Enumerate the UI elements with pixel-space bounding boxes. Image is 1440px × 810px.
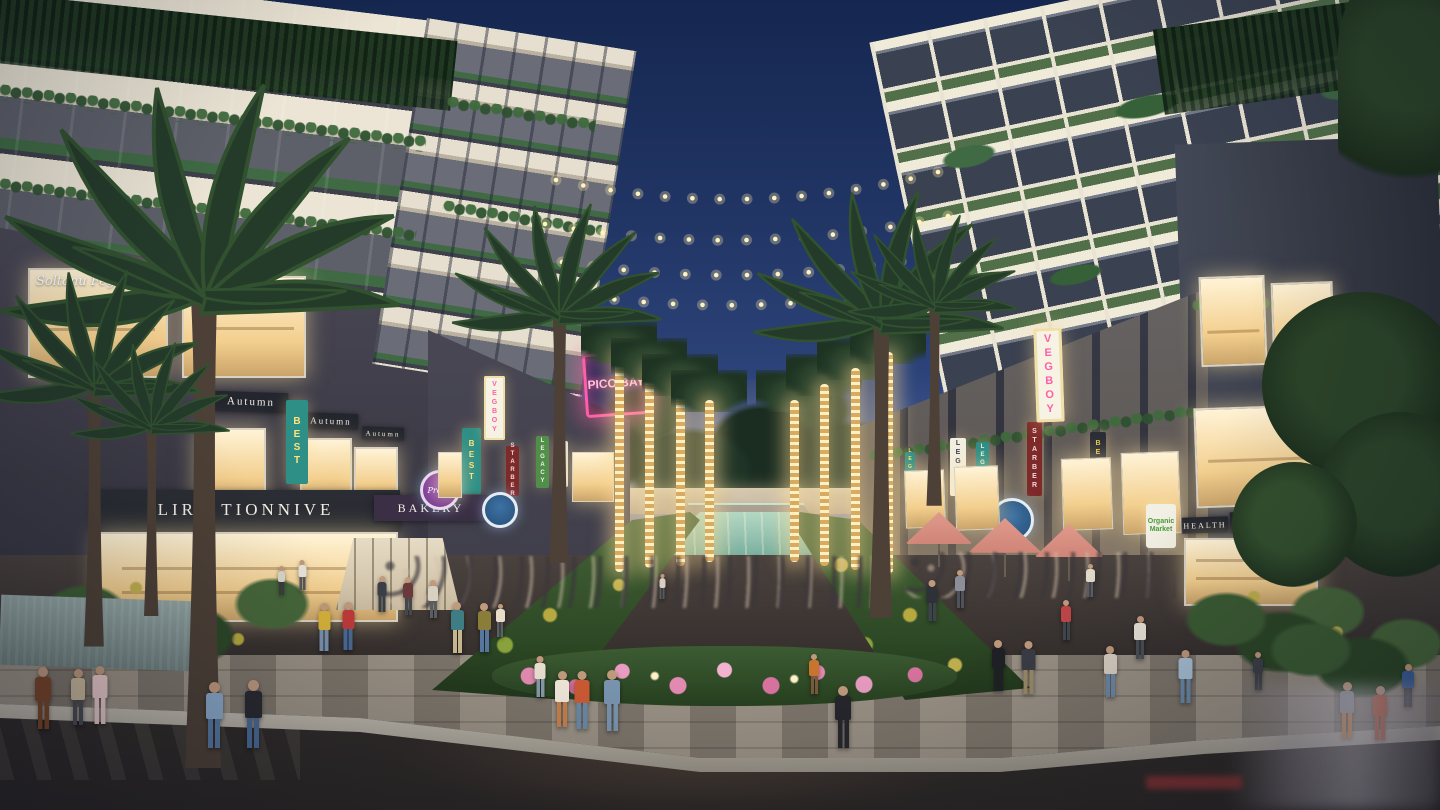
torso [35, 677, 51, 701]
bulb-glow [885, 221, 896, 232]
light-wrapped-trunk [884, 352, 893, 574]
torso [1104, 654, 1117, 674]
legs [320, 630, 329, 651]
pedestrian [1084, 564, 1096, 600]
string-light-bulb [818, 299, 823, 304]
upper-window [1198, 275, 1267, 367]
head [607, 670, 617, 680]
vegboy-banner: VEGBOY [1033, 328, 1064, 423]
torso [535, 663, 546, 679]
legs [405, 598, 412, 615]
best-banner: BEST [286, 400, 308, 484]
legs [430, 601, 437, 618]
bulb-glow [873, 289, 884, 300]
string-light-bulb [802, 235, 807, 240]
string-light-bulb [683, 272, 688, 277]
pedestrian [807, 654, 821, 696]
string-light-bulb [690, 196, 695, 201]
string-light-bulb [612, 297, 617, 302]
bulb-glow [668, 298, 679, 309]
torso [451, 610, 464, 630]
legs [208, 719, 220, 748]
umbrella-canopy [905, 512, 973, 544]
string-light-bulb [772, 196, 777, 201]
torso [298, 565, 306, 577]
legs [247, 718, 259, 748]
liru-tionnive-sign: LIRU TIONNIVE [92, 490, 400, 530]
light-wrapped-trunk [705, 400, 714, 562]
torso [835, 696, 851, 720]
legacy-banner: LEGACY [536, 436, 549, 488]
shop-window [1061, 457, 1113, 531]
legs [660, 588, 665, 599]
best-banner: BEST [462, 428, 481, 494]
legs [607, 704, 618, 731]
string-light-bulb [888, 225, 893, 230]
bulb-glow [711, 270, 722, 281]
torso [1021, 649, 1035, 670]
string-light-bulb [899, 259, 904, 264]
shelf-line [1207, 329, 1259, 334]
legs [536, 679, 544, 697]
head [1181, 650, 1189, 658]
shelf-line [41, 328, 155, 331]
pedestrian [241, 680, 265, 752]
head [1106, 646, 1114, 654]
legs [379, 596, 386, 612]
string-light-bulb [868, 264, 873, 269]
torso [992, 648, 1005, 668]
bulb-glow [772, 269, 783, 280]
organic-market-sign: Organic Market [1146, 504, 1176, 548]
head [1137, 616, 1144, 623]
bulb-glow [697, 299, 708, 310]
torso [245, 691, 262, 718]
torso [278, 571, 285, 582]
bulb-glow [896, 256, 907, 267]
string-light-bulb [906, 288, 911, 293]
bulb-glow [742, 194, 753, 205]
torso [342, 610, 354, 629]
bulb-glow [683, 234, 694, 245]
bulb-glow [785, 298, 796, 309]
string-light-bulb [831, 232, 836, 237]
legs [557, 702, 567, 727]
pedestrian [202, 682, 226, 752]
bulb-glow [741, 235, 752, 246]
pedestrian [1101, 646, 1119, 700]
string-light-bulb [773, 237, 778, 242]
shop-window [438, 452, 462, 498]
soltanu-fegaro-sign: Soltanu Fegaro [36, 274, 137, 289]
pedestrian [953, 570, 967, 610]
distant-crowd [380, 556, 900, 608]
light-wrapped-trunk [615, 352, 624, 572]
vegboy-banner: VEGBOY [484, 376, 505, 440]
organic-market-line2: Market [1150, 526, 1173, 534]
torso [955, 576, 965, 591]
bulb-glow [878, 179, 889, 190]
legs [73, 700, 83, 725]
shop-window: Soltanu Fegaro [28, 268, 168, 378]
head [929, 580, 936, 587]
pedestrian [658, 574, 667, 600]
string-light-bulb [788, 301, 793, 306]
pedestrian [68, 669, 88, 729]
tree-canopy [1232, 462, 1357, 587]
pedestrian [1019, 641, 1038, 697]
string-light-bulb [687, 237, 692, 242]
dusk-canal-shopping-street-render: Soltanu Fegaro Autumn Autumn Autumn BEST… [0, 0, 1440, 810]
shop-window [182, 276, 306, 378]
health-sign: HEALTH [1182, 516, 1229, 534]
bulb-glow [756, 299, 767, 310]
shelf-line [194, 327, 295, 330]
torso [1134, 623, 1146, 640]
string-light-bulb [847, 296, 852, 301]
pedestrian [340, 602, 357, 652]
legs [957, 591, 964, 608]
head [994, 640, 1002, 648]
bulb-glow [742, 270, 753, 281]
torso [478, 611, 491, 630]
pedestrian [925, 580, 940, 624]
torso [555, 680, 569, 702]
string-light-bulb [744, 238, 749, 243]
string-light-bulb [658, 236, 663, 241]
legs [497, 622, 503, 637]
torso [496, 609, 505, 622]
bulb-glow [796, 191, 807, 202]
bulb-glow [649, 267, 660, 278]
bulb-glow [714, 194, 725, 205]
bulb-glow [903, 285, 914, 296]
torso [428, 586, 438, 601]
torso [575, 680, 590, 703]
string-light-bulb [881, 182, 886, 187]
umbrella-canopy [968, 518, 1042, 553]
bulb-glow [618, 264, 629, 275]
pedestrian [601, 670, 623, 734]
tail-light-streak [1146, 776, 1242, 789]
bulb-glow [851, 184, 862, 195]
legs [1136, 640, 1144, 659]
string-light-bulb [714, 273, 719, 278]
bulb-glow [770, 234, 781, 245]
head [453, 602, 461, 610]
torso [809, 660, 819, 676]
head [344, 602, 352, 610]
string-light-bulb [799, 194, 804, 199]
string-light-bulb [715, 238, 720, 243]
head [1405, 664, 1412, 671]
light-wrapped-trunk [645, 368, 654, 568]
bulb-glow [660, 191, 671, 202]
bulb-glow [814, 296, 825, 307]
legs [95, 698, 106, 724]
bulb-glow [680, 269, 691, 280]
light-wrapped-trunk [790, 400, 799, 562]
head [96, 666, 105, 675]
bulb-glow [856, 226, 867, 237]
legs [279, 582, 284, 595]
legs [928, 603, 936, 621]
string-light-bulb [827, 191, 832, 196]
pedestrian [1059, 600, 1073, 642]
bulb-glow [726, 300, 737, 311]
pedestrian [552, 671, 572, 731]
torso [378, 582, 387, 596]
bulb-glow [827, 229, 838, 240]
pedestrian [989, 640, 1007, 694]
bulb-glow [844, 293, 855, 304]
pedestrian [448, 602, 466, 656]
string-light-bulb [854, 187, 859, 192]
pedestrian [401, 577, 415, 617]
torso [318, 611, 330, 630]
shop-window [572, 452, 614, 502]
starber-banner: STARBER [1027, 422, 1042, 496]
bulb-glow [834, 264, 845, 275]
torso [1061, 606, 1071, 622]
autumn-sign: Autumn [362, 426, 404, 440]
bulb-glow [803, 267, 814, 278]
bulb-glow [799, 232, 810, 243]
distant-crowd [905, 552, 1175, 598]
starber-banner: STARBER [506, 446, 519, 496]
head [838, 686, 848, 696]
pedestrian [276, 566, 286, 596]
autumn-sign: Autumn [304, 412, 359, 430]
light-wrapped-trunk [820, 384, 829, 566]
string-light-bulb [717, 197, 722, 202]
pedestrian [1132, 616, 1148, 662]
legs [453, 630, 462, 653]
string-light-bulb [621, 268, 626, 273]
bulb-glow [687, 193, 698, 204]
bulb-glow [865, 260, 876, 271]
pedestrian [533, 656, 548, 700]
string-light-bulb [636, 192, 641, 197]
pedestrian [376, 576, 389, 614]
torso [1253, 658, 1263, 673]
bulb-glow [655, 233, 666, 244]
legs [1023, 670, 1033, 694]
head [38, 667, 48, 677]
head [578, 671, 587, 680]
legs [299, 577, 305, 590]
legs [1180, 679, 1190, 703]
cafe-badge [482, 492, 518, 528]
legs [344, 629, 353, 650]
pedestrian [494, 604, 506, 640]
legs [577, 703, 588, 729]
torso [659, 578, 665, 588]
torso [604, 680, 620, 704]
pedestrian [426, 580, 440, 620]
light-wrapped-trunk [851, 368, 860, 570]
head [320, 603, 328, 611]
pedestrian [32, 667, 54, 733]
string-light-bulb [745, 197, 750, 202]
head [1024, 641, 1032, 649]
head [480, 603, 488, 611]
bulb-glow [769, 193, 780, 204]
string-light-bulb [671, 302, 676, 307]
pedestrian [90, 666, 111, 728]
organic-market-line1: Organic [1148, 518, 1174, 526]
string-light-bulb [641, 300, 646, 305]
string-light-bulb [663, 194, 668, 199]
string-light-bulb [837, 267, 842, 272]
corner-foliage [1338, 0, 1440, 210]
bulb-glow [626, 230, 637, 241]
torso [71, 678, 85, 700]
torso [206, 693, 223, 719]
bulb-glow [823, 188, 834, 199]
torso [403, 583, 413, 598]
legs [811, 676, 818, 694]
torso [1086, 569, 1095, 582]
pedestrian [832, 686, 854, 752]
legs [838, 720, 849, 748]
torso [93, 675, 108, 698]
pedestrian [297, 560, 308, 592]
pedestrian [475, 603, 493, 655]
legs [1106, 674, 1115, 697]
autumn-sign: Autumn [214, 391, 289, 414]
legs [38, 701, 49, 729]
legs [480, 630, 489, 652]
legs [994, 668, 1003, 691]
string-light-bulb [629, 234, 634, 239]
head [74, 669, 83, 678]
torso [927, 587, 938, 603]
bulb-glow [638, 297, 649, 308]
bulb-glow [609, 294, 620, 305]
string-light-bulb [876, 292, 881, 297]
string-light-bulb [776, 272, 781, 277]
pedestrian [572, 671, 593, 733]
legs [1087, 582, 1093, 597]
string-light-bulb [859, 229, 864, 234]
left-planter-wall [0, 595, 196, 672]
bulb-glow [632, 188, 643, 199]
string-light-bulb [652, 270, 657, 275]
head [537, 656, 544, 663]
string-light-bulb [700, 303, 705, 308]
head [558, 671, 567, 680]
string-light-bulb [759, 302, 764, 307]
legacy-banner: LEGACY [557, 441, 568, 487]
bulb-glow [712, 235, 723, 246]
head [209, 682, 220, 693]
pedestrian [316, 603, 333, 653]
string-light-bulb [730, 303, 735, 308]
string-light-bulb [806, 270, 811, 275]
string-light-bulb [745, 273, 750, 278]
legs [1063, 622, 1070, 640]
pedestrian [1176, 650, 1195, 706]
head [248, 680, 259, 691]
motion-blur-vehicle [1228, 686, 1440, 810]
torso [1178, 658, 1192, 679]
